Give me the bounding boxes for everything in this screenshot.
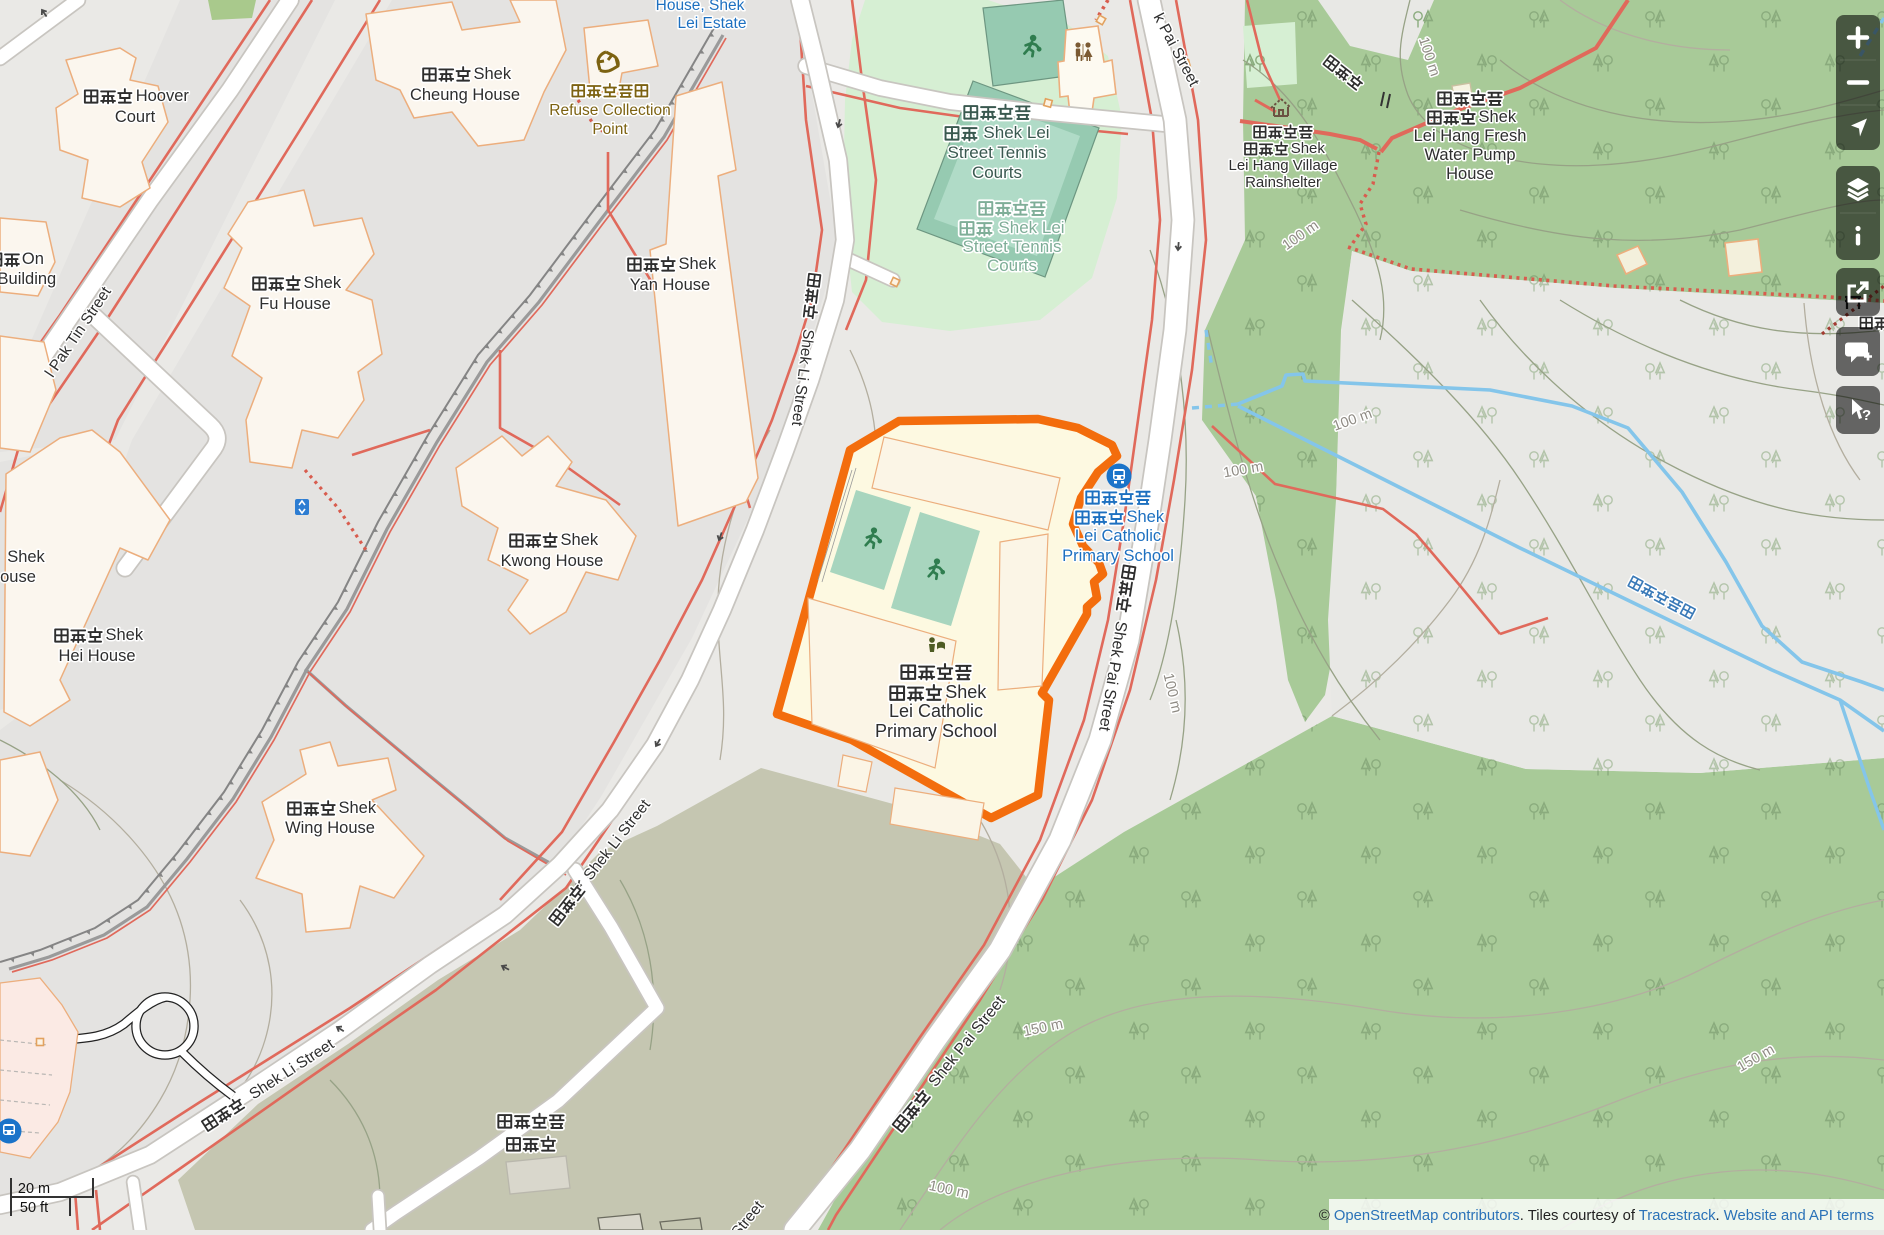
svg-text:Fu House: Fu House <box>259 295 331 313</box>
svg-text:Street Tennis: Street Tennis <box>963 237 1062 256</box>
svg-text:House: House <box>1446 165 1494 183</box>
svg-text:On: On <box>22 250 44 268</box>
svg-text:Shek: Shek <box>7 548 45 566</box>
svg-text:Courts: Courts <box>987 256 1037 275</box>
svg-text:Wing House: Wing House <box>285 819 375 837</box>
svg-text:Kwong House: Kwong House <box>501 552 604 570</box>
svg-text:Shek: Shek <box>678 255 716 273</box>
svg-text:Courts: Courts <box>972 163 1022 182</box>
svg-text:Shek: Shek <box>338 799 376 817</box>
svg-text:Shek: Shek <box>473 65 511 83</box>
svg-text:20 m: 20 m <box>18 1181 50 1197</box>
svg-text:Lei Hang Fresh: Lei Hang Fresh <box>1414 127 1527 145</box>
svg-text:Court: Court <box>115 108 156 126</box>
svg-text:© OpenStreetMap contributors.: © OpenStreetMap contributors. Tiles cour… <box>1319 1208 1874 1224</box>
svg-text:Yan House: Yan House <box>630 276 710 294</box>
svg-text:Shek Lei: Shek Lei <box>998 218 1064 237</box>
svg-text:Cheung House: Cheung House <box>410 86 520 104</box>
svg-text:Shek: Shek <box>303 274 341 292</box>
svg-text:Shek: Shek <box>105 626 143 644</box>
svg-text:Rainshelter: Rainshelter <box>1245 174 1321 191</box>
svg-text:Shek: Shek <box>560 531 598 549</box>
svg-text:Street Tennis: Street Tennis <box>948 143 1047 162</box>
svg-text:Lei Estate: Lei Estate <box>678 15 747 32</box>
svg-text:Hei House: Hei House <box>58 647 135 665</box>
svg-text:Hoover: Hoover <box>136 87 190 105</box>
svg-text:Lei Catholic: Lei Catholic <box>1075 527 1161 545</box>
svg-text:ouse: ouse <box>0 568 36 586</box>
svg-text:Refuse Collection: Refuse Collection <box>549 102 670 119</box>
svg-text:Lei Hang Village: Lei Hang Village <box>1229 157 1338 174</box>
svg-text:Shek: Shek <box>945 682 987 702</box>
svg-text:50 ft: 50 ft <box>20 1200 48 1216</box>
svg-text:Primary School: Primary School <box>1062 547 1174 565</box>
svg-text:Shek: Shek <box>1291 140 1326 157</box>
svg-text:Shek: Shek <box>1478 108 1516 126</box>
svg-text:Shek: Shek <box>1126 508 1164 526</box>
svg-text:Primary School: Primary School <box>875 721 997 741</box>
svg-text:Lei Catholic: Lei Catholic <box>889 701 983 721</box>
svg-text:Point: Point <box>592 121 628 138</box>
svg-text:?: ? <box>1862 407 1871 424</box>
svg-text:Shek Lei: Shek Lei <box>983 123 1049 142</box>
svg-text:g Building: g Building <box>0 270 56 288</box>
svg-text:Water Pump: Water Pump <box>1424 146 1515 164</box>
svg-text:House, Shek: House, Shek <box>656 0 745 14</box>
